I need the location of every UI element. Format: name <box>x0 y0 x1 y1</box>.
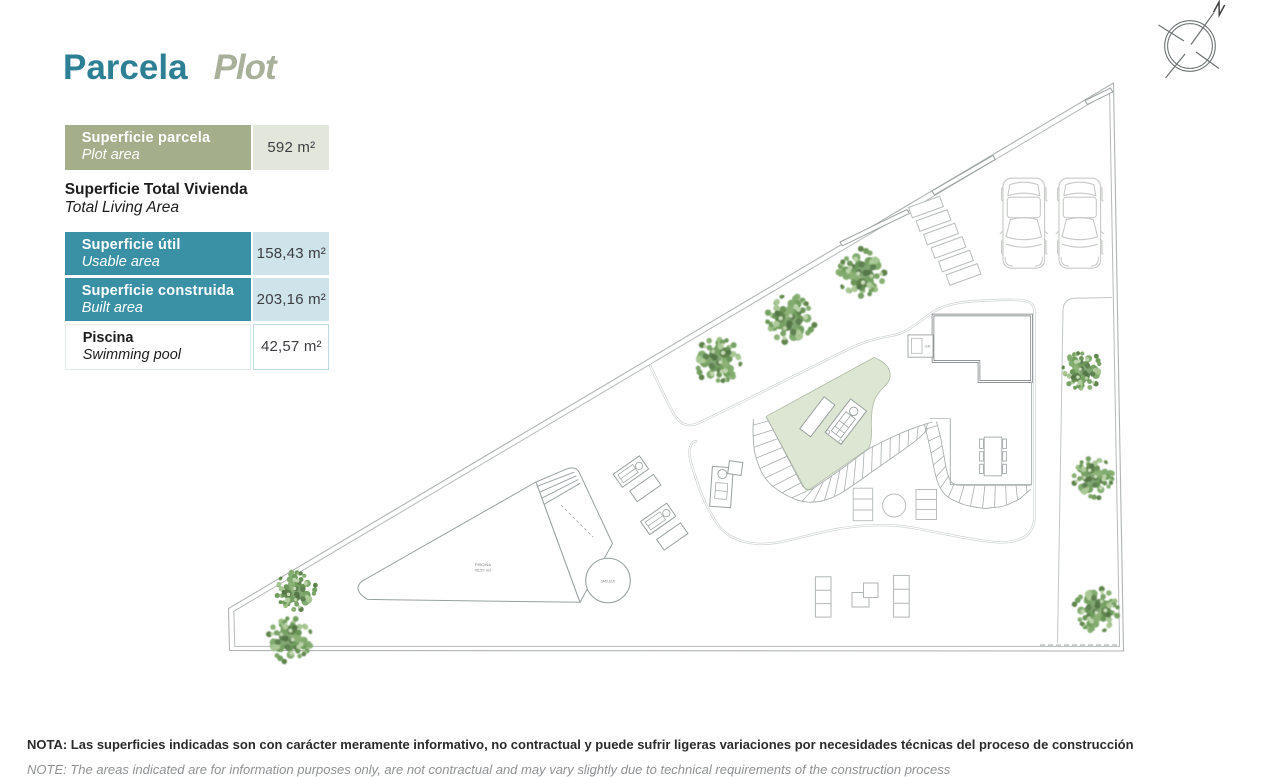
svg-text:JACUZZI: JACUZZI <box>601 580 616 584</box>
svg-text:GR: GR <box>925 344 931 349</box>
svg-text:42,57 m2: 42,57 m2 <box>475 568 492 573</box>
svg-text:PISCINA: PISCINA <box>475 562 491 567</box>
